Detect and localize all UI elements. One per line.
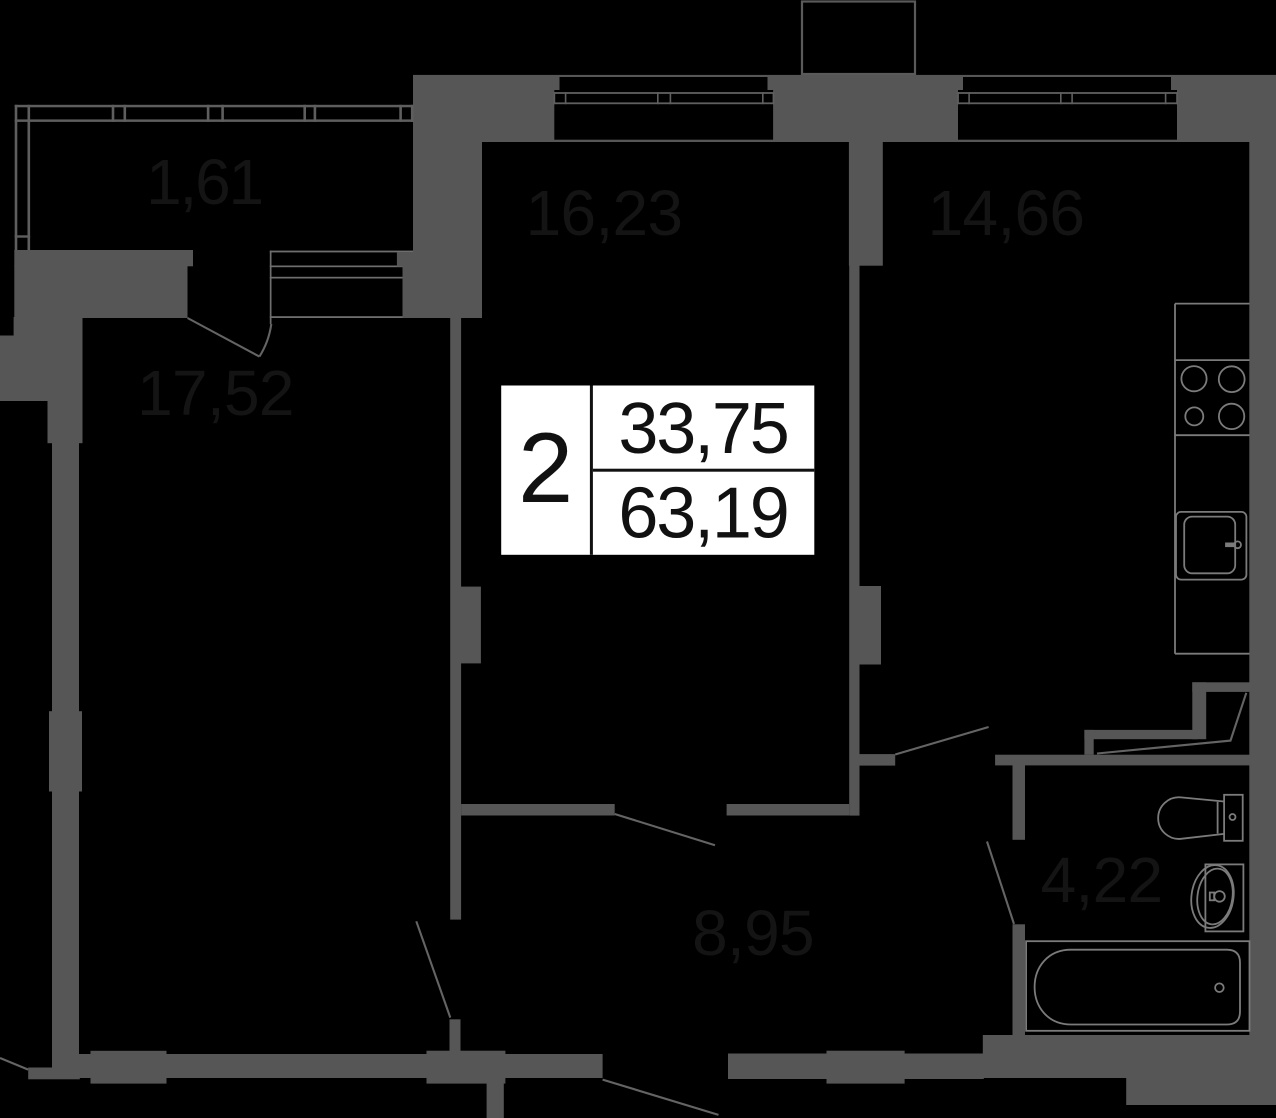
svg-text:63,19: 63,19 (618, 474, 787, 554)
svg-text:17,52: 17,52 (137, 357, 294, 429)
svg-text:33,75: 33,75 (618, 389, 787, 469)
svg-text:4,22: 4,22 (1041, 844, 1163, 916)
svg-text:2: 2 (518, 412, 573, 523)
svg-text:14,66: 14,66 (928, 177, 1085, 249)
svg-text:8,95: 8,95 (692, 897, 814, 969)
svg-text:1,61: 1,61 (146, 146, 262, 218)
svg-text:16,23: 16,23 (526, 177, 683, 249)
